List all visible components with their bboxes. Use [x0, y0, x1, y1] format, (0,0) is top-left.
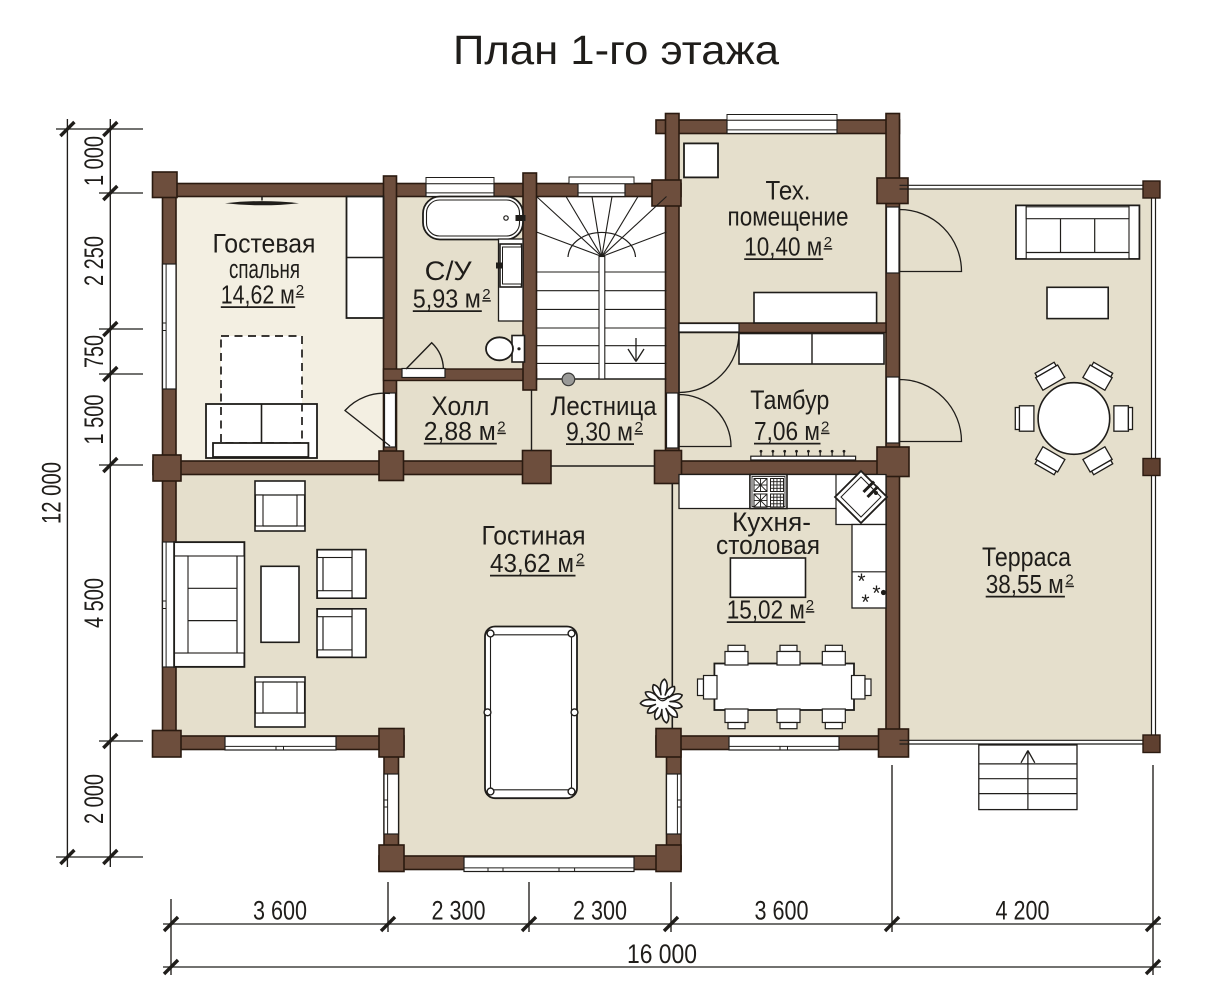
- svg-text:4 200: 4 200: [996, 896, 1050, 926]
- svg-text:2 300: 2 300: [573, 896, 627, 926]
- svg-text:3 600: 3 600: [755, 896, 809, 926]
- svg-text:План 1-го этажа: План 1-го этажа: [453, 27, 779, 73]
- svg-text:4 500: 4 500: [79, 578, 109, 628]
- svg-text:9,30 м: 9,30 м: [566, 419, 633, 447]
- svg-text:2 250: 2 250: [79, 236, 109, 286]
- svg-text:43,62 м: 43,62 м: [490, 550, 574, 578]
- svg-text:12 000: 12 000: [37, 462, 67, 524]
- svg-text:14,62 м: 14,62 м: [221, 282, 295, 310]
- svg-text:1 500: 1 500: [79, 395, 109, 445]
- svg-text:С/У: С/У: [425, 256, 473, 286]
- svg-text:2 000: 2 000: [79, 774, 109, 824]
- svg-text:16 000: 16 000: [627, 939, 697, 969]
- svg-text:750: 750: [79, 335, 109, 368]
- svg-text:Гостиная: Гостиная: [482, 521, 586, 551]
- svg-text:2,88 м: 2,88 м: [424, 418, 496, 446]
- svg-text:спальня: спальня: [229, 254, 300, 284]
- svg-text:Терраса: Терраса: [982, 542, 1072, 572]
- svg-text:*: *: [861, 591, 869, 614]
- svg-text:2 300: 2 300: [432, 896, 486, 926]
- svg-text:15,02 м: 15,02 м: [727, 597, 805, 625]
- svg-text:*: *: [872, 582, 880, 605]
- svg-text:Тамбур: Тамбур: [750, 385, 829, 415]
- svg-text:помещение: помещение: [728, 202, 849, 232]
- svg-text:Холл: Холл: [431, 391, 489, 421]
- svg-text:Лестница: Лестница: [551, 391, 658, 421]
- svg-text:7,06 м: 7,06 м: [754, 418, 820, 446]
- svg-text:5,93 м: 5,93 м: [413, 286, 481, 314]
- svg-text:3 600: 3 600: [253, 896, 307, 926]
- svg-text:38,55 м: 38,55 м: [986, 571, 1064, 599]
- svg-text:столовая: столовая: [716, 530, 820, 560]
- svg-text:1 000: 1 000: [79, 136, 109, 186]
- svg-text:10,40 м: 10,40 м: [744, 234, 822, 262]
- svg-text:*: *: [857, 570, 865, 593]
